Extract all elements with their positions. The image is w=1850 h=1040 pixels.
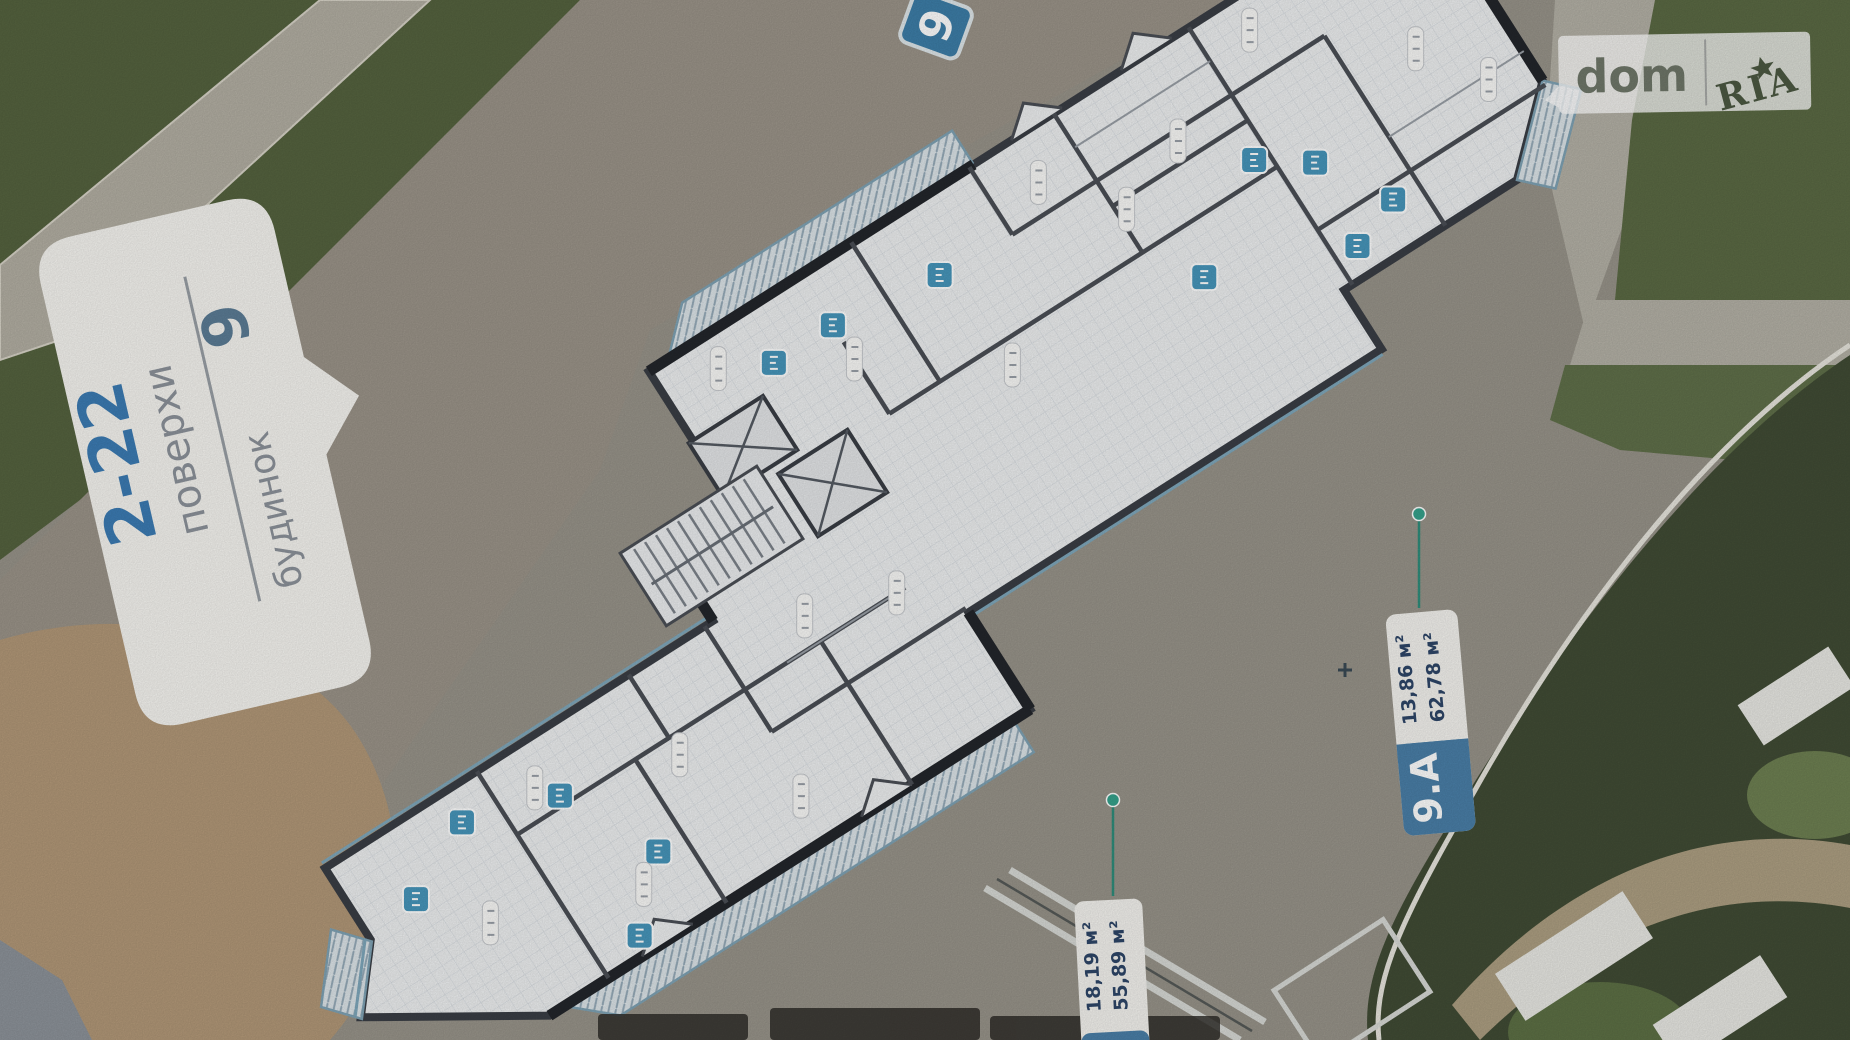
floorplan-aerial-photo: 13,86 м² 62,78 м² 9.A 18,19 м² 55,89 м² …: [0, 0, 1850, 1040]
scene: 13,86 м² 62,78 м² 9.A 18,19 м² 55,89 м² …: [0, 0, 1850, 1040]
photo-grain-overlay: [0, 0, 1850, 1040]
